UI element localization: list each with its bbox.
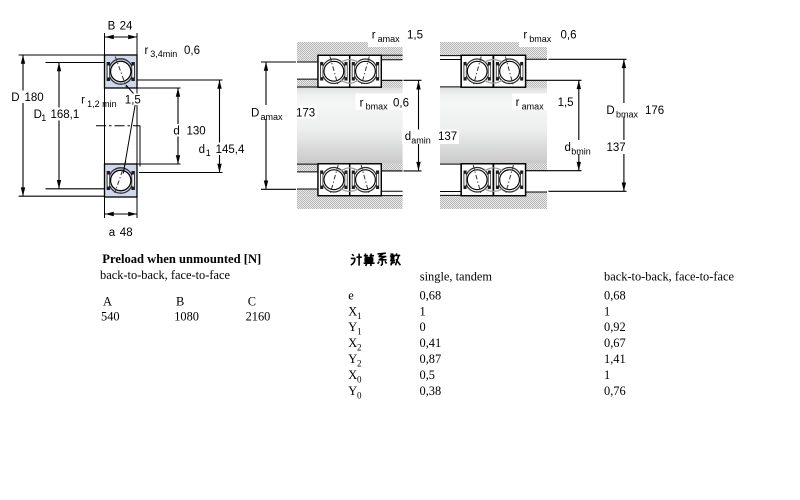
svg-text:B: B	[108, 21, 116, 33]
svg-text:1: 1	[357, 311, 362, 321]
svg-text:B: B	[176, 294, 184, 308]
svg-text:145,4: 145,4	[216, 144, 245, 156]
svg-text:0: 0	[357, 375, 362, 385]
svg-text:r: r	[360, 97, 364, 109]
svg-text:24: 24	[120, 21, 133, 33]
svg-text:1: 1	[604, 304, 610, 318]
svg-text:single, tandem: single, tandem	[420, 270, 493, 284]
svg-text:0,87: 0,87	[420, 352, 442, 366]
svg-text:1: 1	[41, 113, 46, 123]
svg-text:bmin: bmin	[571, 146, 591, 156]
svg-text:48: 48	[120, 227, 133, 239]
svg-text:bmax: bmax	[366, 102, 389, 112]
svg-text:D: D	[606, 105, 614, 117]
svg-text:amax: amax	[261, 112, 284, 122]
svg-text:0,68: 0,68	[604, 288, 626, 302]
svg-text:137: 137	[607, 142, 626, 154]
svg-text:173: 173	[296, 108, 315, 120]
svg-text:Preload when unmounted [N]: Preload when unmounted [N]	[102, 252, 261, 266]
svg-text:180: 180	[25, 92, 44, 104]
svg-text:r: r	[145, 45, 149, 57]
svg-text:0: 0	[357, 390, 362, 400]
svg-text:0,92: 0,92	[604, 320, 626, 334]
svg-text:r: r	[81, 95, 85, 107]
svg-text:amax: amax	[378, 34, 401, 44]
svg-text:1080: 1080	[174, 309, 199, 323]
svg-text:X: X	[348, 368, 357, 382]
svg-text:2160: 2160	[246, 309, 271, 323]
svg-text:X: X	[348, 304, 357, 318]
svg-text:0,38: 0,38	[420, 384, 442, 398]
svg-text:r: r	[516, 97, 520, 109]
svg-text:D: D	[11, 92, 19, 104]
svg-text:a: a	[109, 227, 116, 239]
svg-text:amax: amax	[522, 102, 545, 112]
svg-text:d: d	[405, 131, 411, 143]
svg-text:0,68: 0,68	[420, 288, 442, 302]
svg-text:1: 1	[420, 304, 426, 318]
svg-text:1,41: 1,41	[604, 352, 626, 366]
svg-text:r: r	[523, 30, 527, 42]
svg-text:1: 1	[206, 148, 211, 158]
svg-text:0,76: 0,76	[604, 384, 626, 398]
svg-text:Y: Y	[348, 352, 357, 366]
svg-text:2: 2	[357, 343, 362, 353]
svg-text:3,4min: 3,4min	[150, 49, 177, 59]
svg-text:d: d	[173, 125, 179, 137]
svg-text:e: e	[348, 288, 354, 302]
svg-text:Y: Y	[348, 384, 357, 398]
svg-text:C: C	[248, 294, 256, 308]
svg-text:1,5: 1,5	[558, 97, 574, 109]
svg-text:0: 0	[420, 320, 426, 334]
svg-text:A: A	[103, 294, 112, 308]
svg-text:bmax: bmax	[529, 34, 552, 44]
svg-text:168,1: 168,1	[51, 109, 80, 121]
svg-text:amin: amin	[411, 136, 431, 146]
svg-text:0,67: 0,67	[604, 336, 626, 350]
svg-text:176: 176	[645, 105, 664, 117]
svg-text:r: r	[372, 30, 376, 42]
svg-text:0,6: 0,6	[184, 45, 200, 57]
svg-text:back-to-back, face-to-face: back-to-back, face-to-face	[604, 270, 735, 284]
svg-text:540: 540	[101, 309, 120, 323]
svg-text:back-to-back, face-to-face: back-to-back, face-to-face	[100, 268, 231, 282]
svg-text:2: 2	[357, 359, 362, 369]
svg-text:0,41: 0,41	[420, 336, 442, 350]
svg-text:d: d	[199, 144, 205, 156]
svg-text:137: 137	[438, 131, 457, 143]
svg-text:bmax: bmax	[616, 109, 639, 119]
svg-text:1,5: 1,5	[407, 30, 423, 42]
svg-text:1: 1	[604, 368, 610, 382]
svg-text:Y: Y	[348, 320, 357, 334]
svg-text:0,5: 0,5	[420, 368, 436, 382]
svg-text:d: d	[565, 142, 571, 154]
svg-text:1: 1	[357, 327, 362, 337]
svg-text:1,2 min: 1,2 min	[87, 99, 117, 109]
svg-text:X: X	[348, 336, 357, 350]
svg-text:0,6: 0,6	[393, 97, 409, 109]
svg-text:D: D	[251, 108, 259, 120]
svg-text:0,6: 0,6	[561, 30, 577, 42]
svg-text:130: 130	[187, 125, 206, 137]
svg-text:1,5: 1,5	[125, 94, 141, 106]
